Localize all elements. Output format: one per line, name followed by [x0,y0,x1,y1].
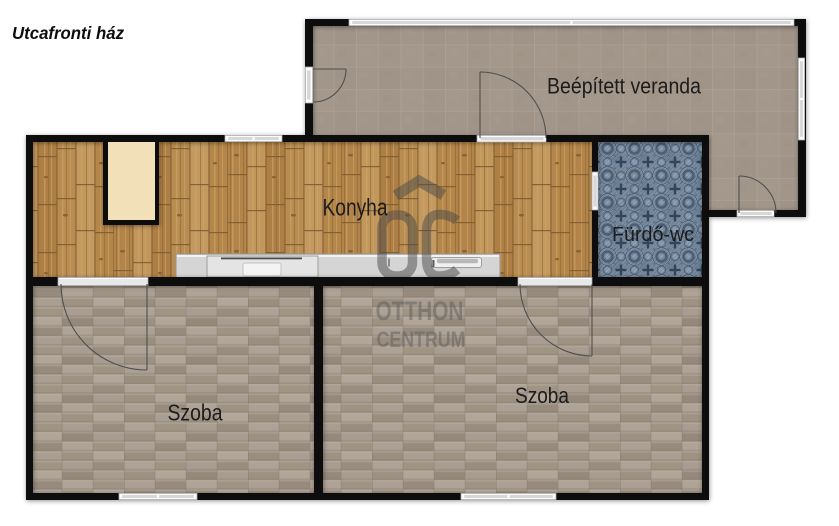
svg-text:Utcafronti ház: Utcafronti ház [12,23,124,43]
svg-text:OTTHON: OTTHON [376,296,464,326]
svg-text:Szoba: Szoba [168,400,224,426]
svg-text:Szoba: Szoba [515,383,570,408]
svg-text:Konyha: Konyha [323,195,389,222]
svg-text:CENTRUM: CENTRUM [377,327,466,352]
svg-text:Beépített veranda: Beépített veranda [547,74,702,99]
svg-text:Fürdő-wc: Fürdő-wc [612,223,694,246]
